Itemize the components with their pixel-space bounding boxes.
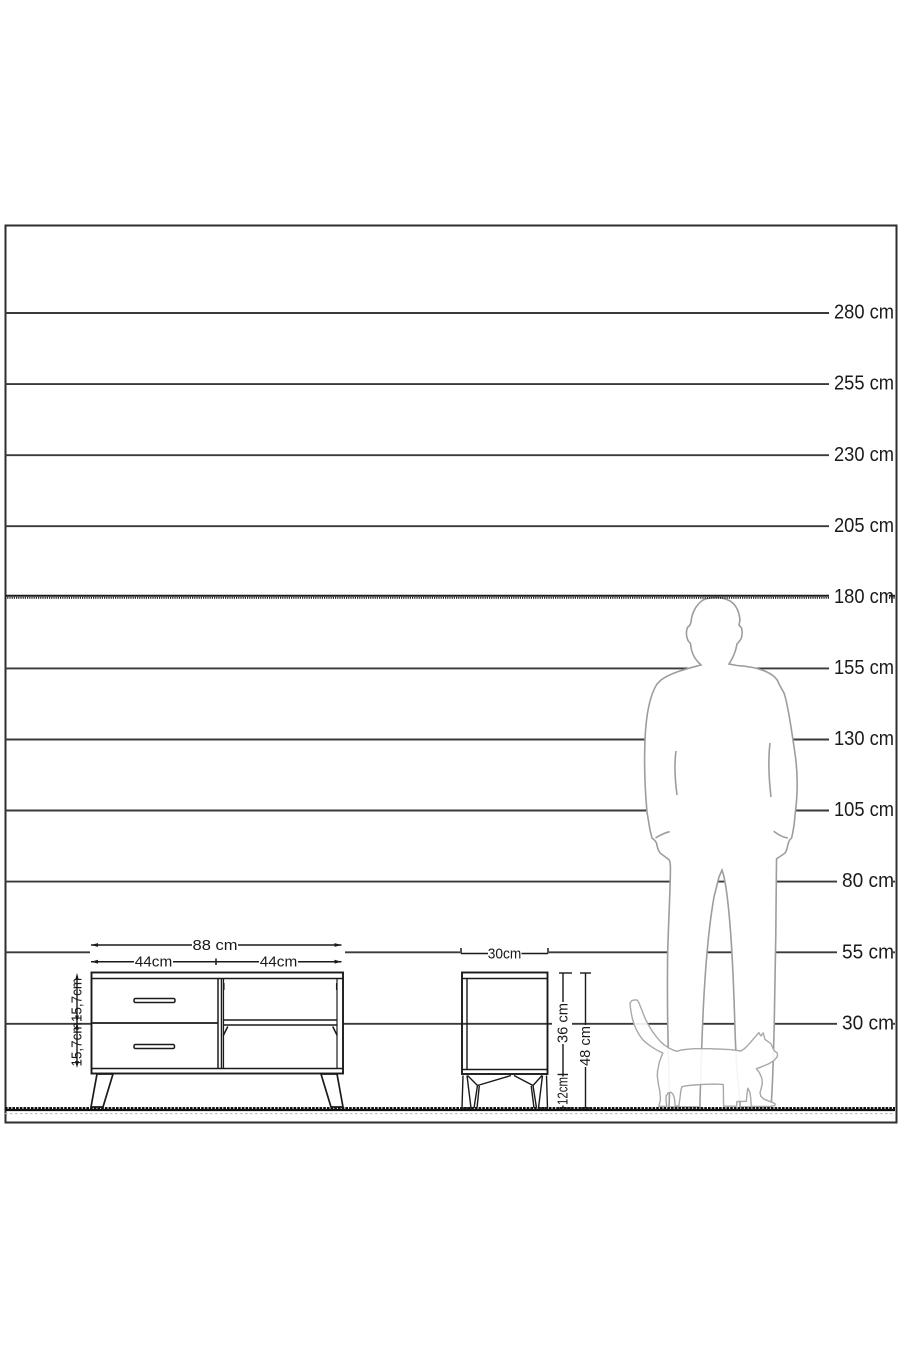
svg-text:15,7cm: 15,7cm bbox=[70, 978, 86, 1022]
svg-text:80 cm: 80 cm bbox=[842, 869, 894, 892]
svg-text:105 cm: 105 cm bbox=[834, 798, 894, 821]
svg-text:205 cm: 205 cm bbox=[834, 514, 894, 537]
svg-text:44cm: 44cm bbox=[135, 954, 173, 970]
svg-text:280 cm: 280 cm bbox=[834, 301, 894, 324]
svg-text:48 cm: 48 cm bbox=[578, 1026, 594, 1066]
svg-text:44cm: 44cm bbox=[260, 954, 298, 970]
svg-text:88 cm: 88 cm bbox=[193, 938, 238, 954]
svg-text:180 cm: 180 cm bbox=[834, 585, 894, 608]
svg-text:155 cm: 155 cm bbox=[834, 656, 894, 679]
svg-text:255 cm: 255 cm bbox=[834, 372, 894, 395]
svg-text:30cm: 30cm bbox=[488, 946, 522, 962]
svg-text:12cm: 12cm bbox=[556, 1077, 572, 1105]
svg-text:15,7cm: 15,7cm bbox=[70, 1023, 86, 1067]
svg-text:130 cm: 130 cm bbox=[834, 727, 894, 750]
svg-text:230 cm: 230 cm bbox=[834, 443, 894, 466]
svg-text:36 cm: 36 cm bbox=[556, 1003, 572, 1043]
svg-text:30 cm: 30 cm bbox=[842, 1011, 894, 1034]
svg-text:55 cm: 55 cm bbox=[842, 940, 894, 963]
